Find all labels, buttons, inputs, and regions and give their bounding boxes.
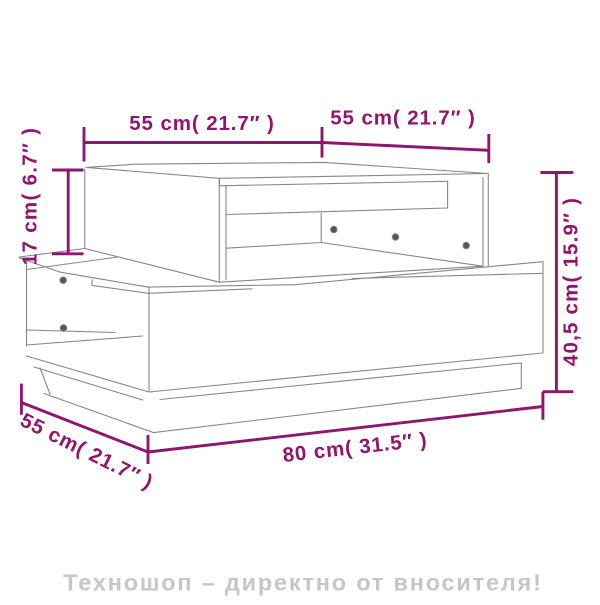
svg-text:55 cm( 21.7″ ): 55 cm( 21.7″ )	[129, 112, 275, 135]
svg-text:Техношоп – директно от вносите: Техношоп – директно от вносителя!	[63, 569, 542, 595]
svg-text:40,5 cm( 15.9″ ): 40,5 cm( 15.9″ )	[560, 197, 583, 366]
svg-text:17 cm( 6.7″ ): 17 cm( 6.7″ )	[19, 127, 42, 265]
svg-text:55 cm( 21.7″ ): 55 cm( 21.7″ )	[330, 107, 476, 130]
